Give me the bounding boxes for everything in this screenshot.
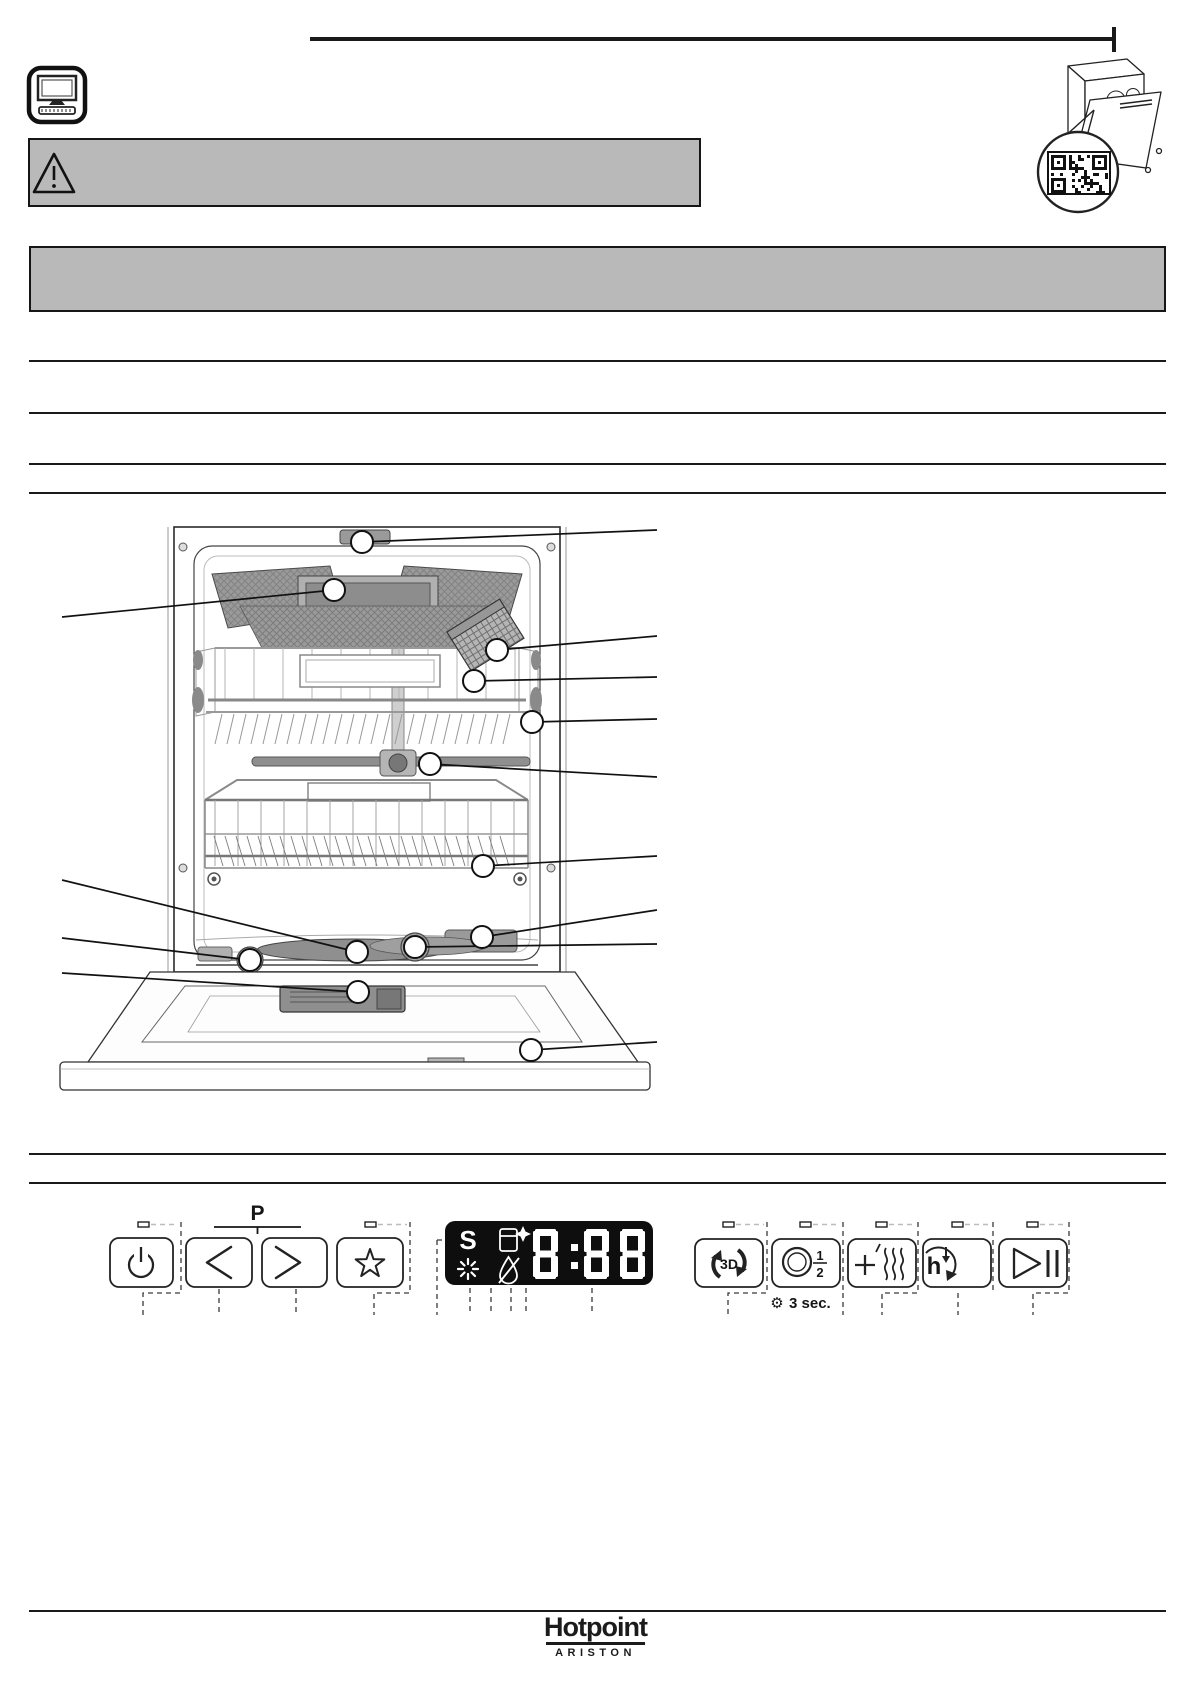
computer-monitor-icon	[26, 65, 88, 125]
section-rule-2	[29, 412, 1166, 414]
callout-third-rack	[323, 579, 345, 601]
favorite-button	[337, 1238, 403, 1287]
salt-indicator: S	[459, 1225, 476, 1255]
dishwasher-with-qr-code	[1030, 50, 1180, 220]
callout-middle-spray-arm	[419, 753, 441, 775]
callout-rack-rails	[521, 711, 543, 733]
callout-rating-plate	[520, 1039, 542, 1061]
header-rule	[310, 37, 1114, 41]
section-rule-1	[29, 360, 1166, 362]
program-next-button	[262, 1238, 327, 1287]
hold-hint-label: 3 sec.	[789, 1295, 831, 1312]
brand-logo: Hotpoint	[0, 1612, 1191, 1643]
callout-lower-rack	[472, 855, 494, 877]
gear-icon: ⚙	[770, 1295, 783, 1312]
sub-brand-logo: ARISTON	[0, 1647, 1191, 1659]
callout-cutlery-basket	[486, 639, 508, 661]
callout-upper-rack	[463, 670, 485, 692]
callout-filter-assembly	[404, 936, 426, 958]
dishwasher-diagram	[0, 480, 1191, 1100]
svg-text:1: 1	[816, 1248, 823, 1263]
svg-text:2: 2	[816, 1265, 823, 1280]
power-button	[110, 1238, 173, 1287]
warning-box	[28, 138, 701, 207]
control-panel-diagram: P	[0, 1195, 1191, 1330]
section-rule-6	[29, 1182, 1166, 1184]
brand-underline	[546, 1642, 645, 1645]
section-rule-3	[29, 463, 1166, 465]
callout-detergent-dispenser	[347, 981, 369, 1003]
program-bracket	[214, 1227, 301, 1234]
program-label: P	[250, 1202, 264, 1225]
warning-triangle-icon	[30, 148, 80, 198]
svg-text:h: h	[927, 1253, 942, 1280]
svg-text:3D: 3D	[720, 1256, 738, 1272]
program-previous-button	[186, 1238, 252, 1287]
callout-sprayer-hub	[346, 941, 368, 963]
title-banner	[29, 246, 1166, 312]
callout-lower-spray-arm	[471, 926, 493, 948]
section-rule-5	[29, 1153, 1166, 1155]
callout-salt-cap	[239, 949, 261, 971]
extra-drying-button	[848, 1239, 916, 1287]
detergent-dispenser	[280, 986, 405, 1012]
callout-water-supply-connection	[351, 531, 373, 553]
header-rule-tick	[1112, 27, 1116, 52]
manual-page: P	[0, 0, 1191, 1684]
